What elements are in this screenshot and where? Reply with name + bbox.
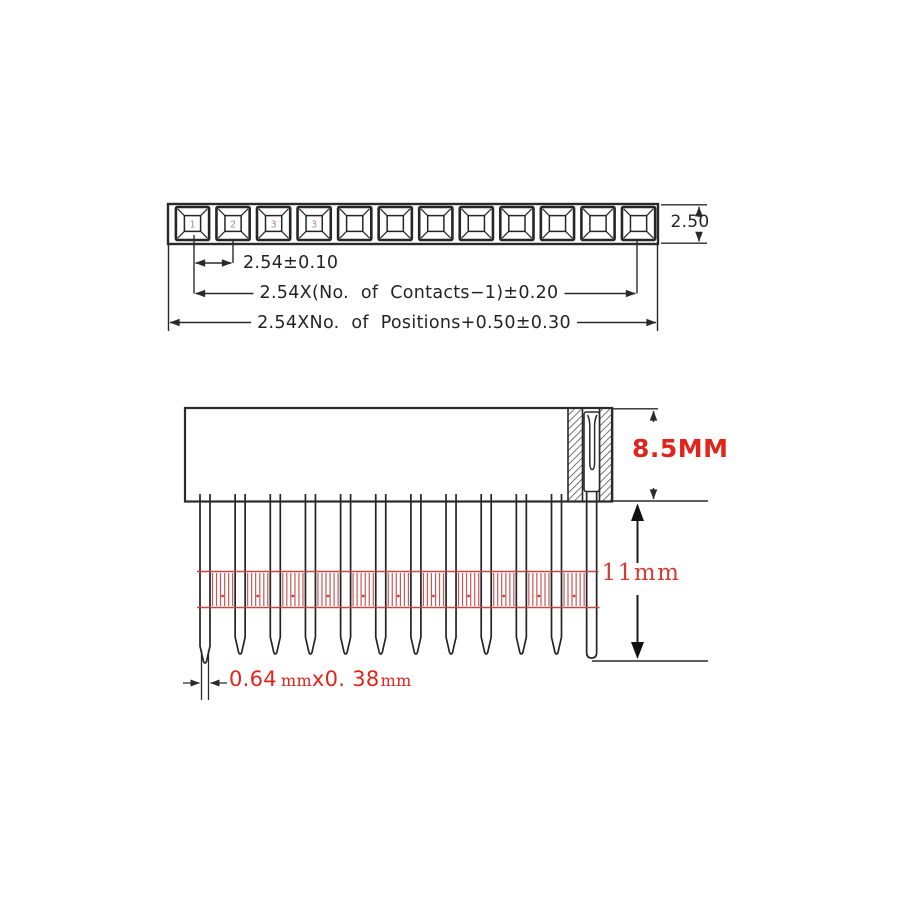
dim-height-label: 2.50 <box>668 213 712 232</box>
band-dot <box>327 595 330 598</box>
pin-tail-value1: 0.64 <box>229 670 277 689</box>
pin-tail-value2: x0. 38 <box>312 670 380 689</box>
socket-number: 3 <box>271 220 277 231</box>
side-view <box>183 408 708 700</box>
socket-inner <box>428 216 444 232</box>
pin <box>552 494 562 654</box>
socket-inner <box>590 216 606 232</box>
band-dot <box>291 595 294 598</box>
socket-number: 2 <box>230 220 236 231</box>
socket-inner <box>347 216 363 232</box>
section-wall-left <box>568 408 583 502</box>
dim-pitch-label: 2.54±0.10 <box>243 254 338 273</box>
band-dot <box>432 595 435 598</box>
socket-inner <box>468 216 484 232</box>
pin <box>516 494 526 654</box>
band-dot <box>502 595 505 598</box>
band-dot <box>467 595 470 598</box>
section-cut <box>568 408 613 502</box>
socket-inner <box>549 216 565 232</box>
socket-inner <box>387 216 403 232</box>
pin <box>376 494 386 654</box>
pin <box>341 494 351 654</box>
pin <box>481 494 491 654</box>
band-dot <box>362 595 365 598</box>
band-dot <box>221 595 224 598</box>
pin <box>587 491 597 658</box>
pin <box>200 494 210 663</box>
pin <box>446 494 456 654</box>
arrow-up <box>631 504 644 522</box>
dim-contacts-label: 2.54X(No. of Contacts−1)±0.20 <box>254 284 565 303</box>
pin-length-label: 11mm <box>599 564 684 583</box>
socket-inner <box>509 216 525 232</box>
pin-tail-unit2: mm <box>381 671 412 690</box>
socket-inner <box>630 216 646 232</box>
section-wall-right <box>600 408 613 502</box>
pin <box>411 494 421 654</box>
band-dot <box>256 595 259 598</box>
socket-number: 1 <box>189 220 195 231</box>
arrow-down <box>631 642 644 659</box>
band-dot <box>397 595 400 598</box>
pin <box>235 494 245 654</box>
connector-technical-drawing: 1233 <box>0 0 900 900</box>
band-dot <box>538 595 541 598</box>
pin-tail-label: 0.64 mm x0. 38 mm <box>229 670 412 690</box>
pin-tail-unit1: mm <box>281 671 312 690</box>
band-dot <box>573 595 576 598</box>
pin <box>305 494 315 654</box>
body-height-label: 8.5MM <box>632 439 729 458</box>
housing-body-outline <box>185 408 612 502</box>
pin <box>270 494 280 654</box>
drawing-canvas: 1233 <box>0 0 900 900</box>
red-hatch-band <box>197 572 600 608</box>
socket-number: 3 <box>311 220 317 231</box>
dim-positions-label: 2.54XNo. of Positions+0.50±0.30 <box>251 314 577 333</box>
